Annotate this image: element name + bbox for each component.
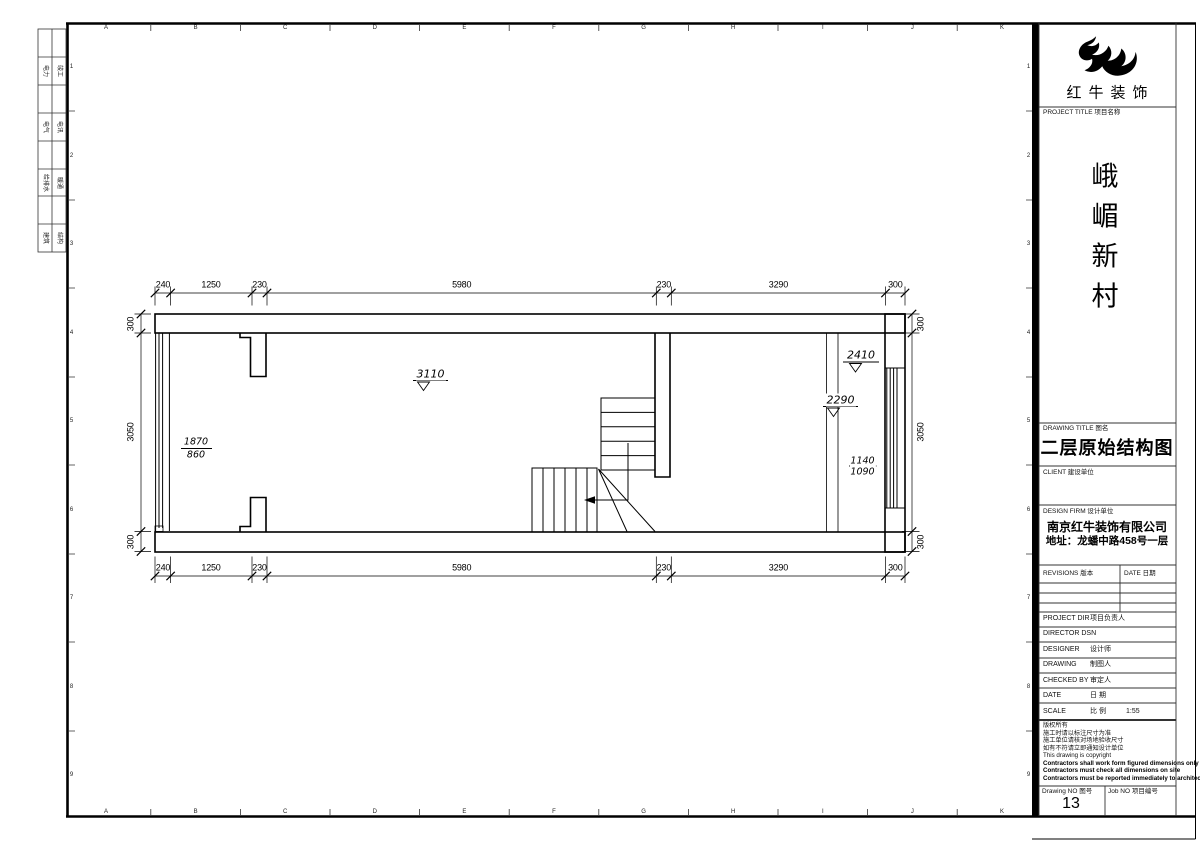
drawing-title-label: DRAWING TITLE 图名 — [1043, 426, 1108, 433]
grid-letter: B — [194, 25, 198, 31]
project-title-label: PROJECT TITLE 项目名称 — [1043, 110, 1120, 117]
grid-letter: H — [731, 25, 735, 31]
grid-letter: A — [104, 25, 108, 31]
dim-bottom: 1250 — [201, 564, 220, 573]
sheet-frame — [66, 23, 1196, 839]
dim-top: 300 — [888, 281, 902, 290]
signoff-cell: 电气 — [42, 121, 48, 133]
dim-bottom: 5980 — [452, 564, 471, 573]
grid-number: 6 — [70, 507, 73, 513]
dim-bottom: 230 — [252, 564, 266, 573]
dim-right: 300 — [917, 534, 926, 548]
revisions-label: REVISIONS 版本 — [1043, 571, 1093, 578]
company-logo-text: 红牛装饰 — [1059, 87, 1154, 102]
grid-letter: I — [822, 25, 824, 31]
job-no-label: Job NO 项目编号 — [1108, 789, 1158, 796]
dim-top: 240 — [156, 281, 170, 290]
dim-top: 230 — [252, 281, 266, 290]
level-annotation: 2410 — [846, 348, 876, 361]
note-line: Contractors must be reported immediately… — [1043, 776, 1200, 782]
date-column-label: DATE 日期 — [1124, 571, 1156, 578]
window-size-annotation: 1090 — [849, 466, 875, 477]
dim-right: 3050 — [917, 423, 926, 442]
note-line: 施工单位请核对场地验收尺寸 — [1043, 738, 1123, 744]
field-label: SCALE — [1043, 708, 1066, 715]
plan-walls — [155, 314, 905, 552]
design-firm-name: 南京红牛装饰有限公司 — [1047, 521, 1167, 533]
field-value: 审定人 — [1090, 677, 1111, 684]
grid-number: 7 — [1027, 595, 1030, 601]
signoff-cell: 暖通 — [56, 176, 62, 188]
design-firm-address: 地址：龙蟠中路458号一层 — [1046, 536, 1169, 547]
grid-letter: F — [552, 25, 556, 31]
grid-letter: C — [283, 809, 287, 815]
dim-left: 300 — [127, 534, 136, 548]
drawing-sheet: A B C D E F G H I J K A B C D E F G H I … — [0, 0, 1200, 844]
dim-bottom: 300 — [888, 564, 902, 573]
client-label: CLIENT 建设单位 — [1043, 470, 1094, 477]
note-line: 版权所有 — [1043, 723, 1068, 729]
grid-letter: F — [552, 809, 556, 815]
dim-bottom: 230 — [657, 564, 671, 573]
signoff-cell: 竣工 — [56, 65, 62, 77]
grid-number: 6 — [1027, 507, 1030, 513]
window-size-annotation: 1140 — [849, 455, 875, 466]
dim-bottom: 3290 — [769, 564, 788, 573]
left-window — [155, 333, 169, 532]
project-name-char: 嵋 — [1092, 204, 1119, 231]
grid-letter: C — [283, 25, 287, 31]
signoff-cell: 电力 — [42, 65, 48, 77]
window-size-annotation: 1870 — [183, 437, 209, 448]
note-line: 如有不符请立即通知设计单位 — [1043, 746, 1123, 752]
grid-number: 4 — [1027, 330, 1030, 336]
grid-number: 8 — [70, 684, 73, 690]
grid-number: 4 — [70, 330, 73, 336]
grid-number: 3 — [1027, 241, 1030, 247]
signoff-cell: 给排水 — [42, 173, 48, 191]
grid-letter: D — [373, 809, 377, 815]
dim-bottom: 240 — [156, 564, 170, 573]
level-annotation: 2290 — [826, 393, 856, 406]
grid-letter: H — [731, 809, 735, 815]
opening-edge-lines — [827, 333, 839, 532]
red-bull-logo-icon — [1073, 29, 1141, 83]
level-symbols — [181, 362, 879, 466]
grid-letter: A — [104, 809, 108, 815]
field-value: 日 期 — [1090, 692, 1106, 699]
field-label: DRAWING — [1043, 661, 1077, 668]
grid-number: 2 — [70, 153, 73, 159]
dim-top: 5980 — [452, 281, 471, 290]
grid-number: 5 — [70, 418, 73, 424]
grid-letter: B — [194, 809, 198, 815]
field-label: DIRECTOR DSN — [1043, 630, 1096, 637]
grid-letter: G — [641, 25, 646, 31]
right-window — [885, 368, 905, 508]
grid-letter: G — [641, 809, 646, 815]
field-label: DATE — [1043, 692, 1061, 699]
note-line: Contractors must check all dimensions on… — [1043, 768, 1180, 774]
grid-number: 7 — [70, 595, 73, 601]
grid-letter: J — [911, 25, 914, 31]
field-value: 项目负责人 — [1090, 615, 1125, 622]
dim-left: 300 — [127, 316, 136, 330]
level-annotation: 3110 — [416, 368, 446, 381]
plan-linework — [0, 0, 1200, 844]
field-value: 设计师 — [1090, 646, 1111, 653]
dim-top: 1250 — [201, 281, 220, 290]
grid-number: 1 — [1027, 64, 1030, 70]
grid-ticks — [69, 25, 1032, 815]
field-label: DESIGNER — [1043, 646, 1080, 653]
signoff-cell: 结构 — [56, 232, 62, 244]
grid-letter: J — [911, 809, 914, 815]
dim-left: 3050 — [127, 423, 136, 442]
dim-top: 230 — [657, 281, 671, 290]
grid-number: 3 — [70, 241, 73, 247]
field-label: PROJECT DIR — [1043, 615, 1090, 622]
project-name-char: 新 — [1092, 244, 1119, 271]
signoff-cell: 电讯 — [56, 121, 62, 133]
grid-letter: D — [373, 25, 377, 31]
signoff-table — [38, 29, 66, 252]
grid-number: 1 — [70, 64, 73, 70]
project-name-char: 村 — [1092, 284, 1119, 311]
grid-number: 2 — [1027, 153, 1030, 159]
field-value: 制图人 — [1090, 661, 1111, 668]
grid-number: 5 — [1027, 418, 1030, 424]
grid-letter: I — [822, 809, 824, 815]
drawing-no-value: 13 — [1062, 796, 1080, 812]
dim-right: 300 — [917, 316, 926, 330]
grid-letter: E — [462, 25, 466, 31]
dim-top: 3290 — [769, 281, 788, 290]
field-label: CHECKED BY — [1043, 677, 1089, 684]
project-name-char: 峨 — [1092, 164, 1119, 191]
note-line: Contractors shall work form figured dime… — [1043, 761, 1199, 767]
signoff-cell: 建筑 — [42, 232, 48, 244]
dimension-lines — [135, 287, 920, 584]
grid-letter: K — [1000, 809, 1004, 815]
field-value: 比 例 — [1090, 708, 1106, 715]
scale-value: 1:55 — [1126, 708, 1140, 715]
note-line: 施工时请以标注尺寸为准 — [1043, 731, 1111, 737]
grid-number: 8 — [1027, 684, 1030, 690]
grid-number: 9 — [70, 772, 73, 778]
grid-number: 9 — [1027, 772, 1030, 778]
drawing-title: 二层原始结构图 — [1041, 439, 1174, 457]
window-size-annotation: 860 — [186, 450, 206, 461]
note-line: This drawing is copyright — [1043, 753, 1111, 759]
grid-letter: K — [1000, 25, 1004, 31]
design-firm-label: DESIGN FIRM 设计单位 — [1043, 509, 1113, 516]
staircase — [532, 398, 655, 532]
grid-letter: E — [462, 809, 466, 815]
